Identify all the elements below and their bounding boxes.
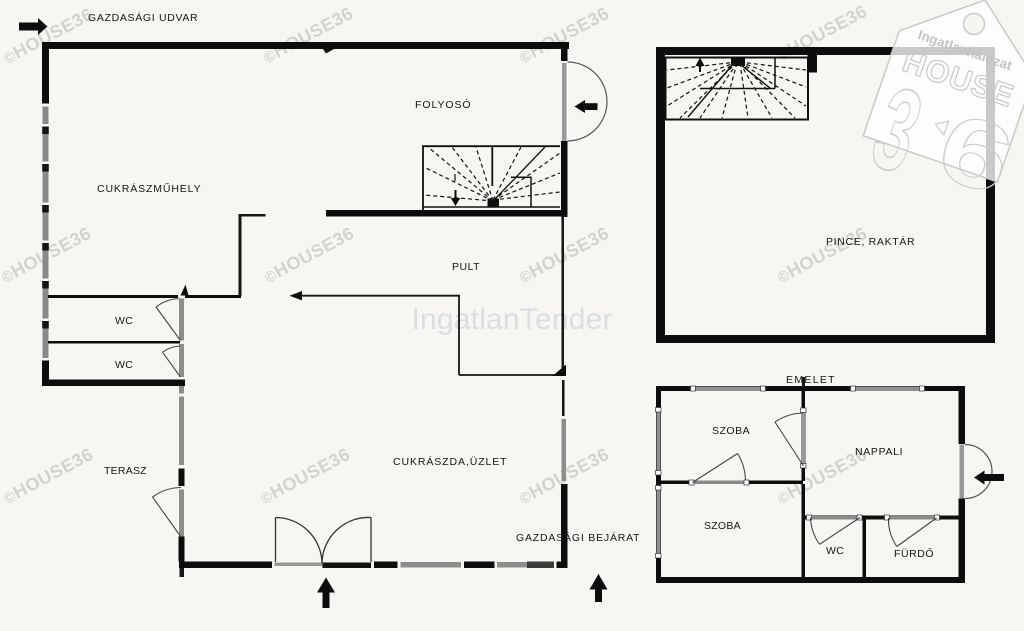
svg-text:PULT: PULT: [452, 261, 480, 273]
svg-text:CUKRÁSZMŰHELY: CUKRÁSZMŰHELY: [97, 181, 201, 195]
svg-text:PINCE, RAKTÁR: PINCE, RAKTÁR: [826, 235, 915, 248]
svg-text:WC: WC: [115, 315, 133, 327]
svg-text:FÜRDŐ: FÜRDŐ: [894, 546, 934, 560]
svg-text:TERASZ: TERASZ: [104, 465, 147, 477]
svg-text:CUKRÁSZDA,ÜZLET: CUKRÁSZDA,ÜZLET: [393, 455, 507, 468]
svg-text:NAPPALI: NAPPALI: [855, 446, 903, 458]
svg-text:WC: WC: [826, 545, 844, 557]
svg-text:GAZDASÁGI UDVAR: GAZDASÁGI UDVAR: [88, 11, 198, 24]
svg-text:IngatlanTender: IngatlanTender: [412, 303, 613, 336]
svg-text:WC: WC: [115, 359, 133, 371]
svg-text:SZOBA: SZOBA: [704, 520, 741, 532]
svg-text:FOLYOSÓ: FOLYOSÓ: [415, 98, 471, 111]
svg-text:EMELET: EMELET: [786, 374, 835, 386]
svg-text:GAZDASÁGI BEJÁRAT: GAZDASÁGI BEJÁRAT: [516, 531, 640, 544]
svg-text:SZOBA: SZOBA: [712, 425, 750, 437]
